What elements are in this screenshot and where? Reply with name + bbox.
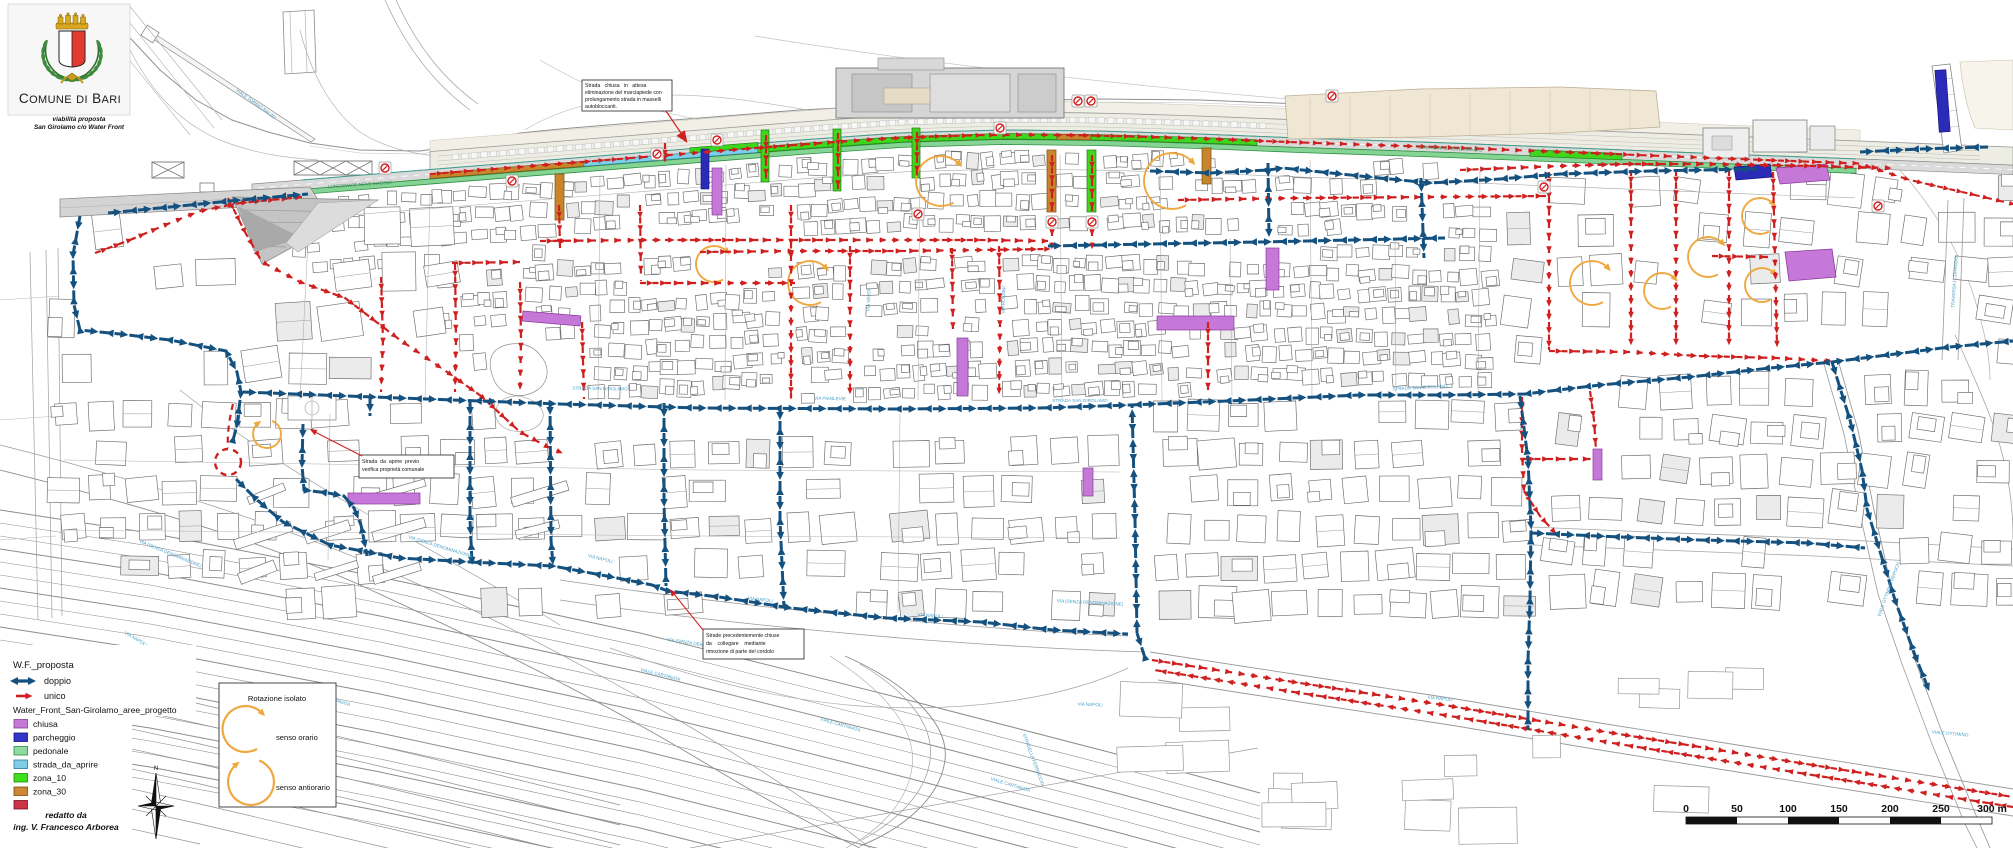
svg-text:COMUNE DI BARI: COMUNE DI BARI — [19, 91, 121, 106]
svg-text:100: 100 — [1779, 803, 1797, 815]
svg-text:Strada da aprire previo: Strada da aprire previo — [362, 459, 419, 465]
svg-text:W.F._proposta: W.F._proposta — [13, 660, 74, 671]
svg-text:Water_Front_San-Girolamo_aree_: Water_Front_San-Girolamo_aree_progetto — [13, 705, 177, 715]
svg-text:rimozione di parte del cordolo: rimozione di parte del cordolo — [706, 649, 774, 655]
svg-text:0: 0 — [1683, 803, 1689, 815]
svg-text:250: 250 — [1932, 803, 1950, 815]
svg-text:Strada chiusa in attesa: Strada chiusa in attesa — [585, 83, 647, 89]
svg-text:ing. V. Francesco Arborea: ing. V. Francesco Arborea — [13, 822, 119, 832]
svg-text:150: 150 — [1830, 803, 1848, 815]
svg-text:autobloccanti.: autobloccanti. — [585, 104, 617, 110]
svg-text:senso orario: senso orario — [276, 733, 318, 742]
svg-text:pedonale: pedonale — [33, 746, 69, 756]
svg-text:VIA PIANLEVIE: VIA PIANLEVIE — [814, 396, 846, 402]
svg-text:viabilità proposta: viabilità proposta — [53, 116, 106, 123]
svg-text:redatto da: redatto da — [45, 810, 87, 820]
svg-text:STRADA SAN GIROLAMO: STRADA SAN GIROLAMO — [1052, 398, 1108, 403]
svg-text:prolungamento strada in massel: prolungamento strada in masselli — [585, 97, 661, 103]
svg-text:VIA VERDI: VIA VERDI — [866, 289, 872, 312]
svg-text:VIA NAPOLI: VIA NAPOLI — [1077, 702, 1102, 708]
svg-text:parcheggio: parcheggio — [33, 733, 76, 743]
svg-text:300 m: 300 m — [1977, 803, 2007, 815]
svg-text:STRADA SAN GIROLAMO: STRADA SAN GIROLAMO — [572, 386, 628, 392]
svg-text:Rotazione isolato: Rotazione isolato — [248, 694, 306, 703]
svg-text:zona_30: zona_30 — [33, 787, 66, 797]
svg-text:Strade precedentemente chiuse: Strade precedentemente chiuse — [706, 633, 780, 639]
svg-text:San Girolamo c/o Water Front: San Girolamo c/o Water Front — [34, 124, 125, 131]
svg-text:N: N — [154, 766, 158, 772]
svg-text:verifica proprietà comunale: verifica proprietà comunale — [362, 467, 424, 473]
svg-text:unico: unico — [44, 691, 66, 701]
svg-text:chiusa: chiusa — [33, 719, 58, 729]
svg-text:VIA ROSSINI: VIA ROSSINI — [1001, 286, 1007, 313]
svg-text:senso antiorario: senso antiorario — [276, 783, 330, 792]
svg-text:da collegare mediante: da collegare mediante — [706, 641, 766, 647]
svg-text:eliminazione del marciapiede c: eliminazione del marciapiede con — [585, 90, 662, 96]
svg-text:doppio: doppio — [44, 676, 71, 686]
svg-text:strada_da_aprire: strada_da_aprire — [33, 760, 98, 770]
svg-text:50: 50 — [1731, 803, 1743, 815]
svg-text:200: 200 — [1881, 803, 1899, 815]
svg-text:zona_10: zona_10 — [33, 773, 66, 783]
